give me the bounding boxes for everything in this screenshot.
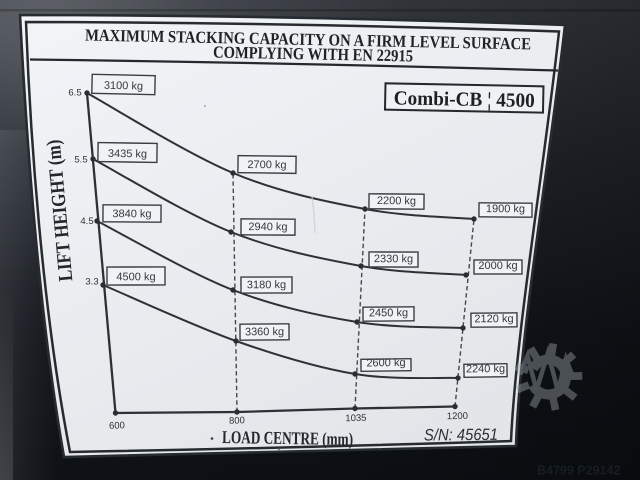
svg-text:3360 kg: 3360 kg xyxy=(245,326,284,338)
svg-text:4500 kg: 4500 kg xyxy=(116,271,155,283)
svg-text:2700 kg: 2700 kg xyxy=(247,159,286,171)
svg-text:2240 kg: 2240 kg xyxy=(466,363,505,376)
svg-text:2120 kg: 2120 kg xyxy=(474,313,513,325)
svg-text:S/N: 45651: S/N: 45651 xyxy=(424,426,498,445)
svg-text:6.5: 6.5 xyxy=(68,88,81,99)
svg-text:2450 kg: 2450 kg xyxy=(369,307,408,319)
svg-text:3435 kg: 3435 kg xyxy=(108,148,147,161)
svg-text:2330 kg: 2330 kg xyxy=(374,253,413,265)
svg-text:2000 kg: 2000 kg xyxy=(478,260,517,272)
svg-text:Combi-CB ¦ 4500: Combi-CB ¦ 4500 xyxy=(394,87,535,112)
svg-text:5.5: 5.5 xyxy=(74,155,87,166)
svg-text:3840 kg: 3840 kg xyxy=(112,208,151,220)
svg-text:3180 kg: 3180 kg xyxy=(247,279,286,291)
svg-text:1200: 1200 xyxy=(447,411,468,423)
svg-text:2940 kg: 2940 kg xyxy=(248,221,287,233)
svg-text:2200 kg: 2200 kg xyxy=(377,195,416,207)
svg-text:LOAD CENTRE (mm): LOAD CENTRE (mm) xyxy=(222,427,353,450)
svg-text:1035: 1035 xyxy=(345,413,366,425)
svg-text:2600 kg: 2600 kg xyxy=(366,357,405,369)
svg-text:4.5: 4.5 xyxy=(80,216,93,227)
svg-text:3100 kg: 3100 kg xyxy=(104,80,143,93)
svg-text:800: 800 xyxy=(229,415,245,426)
svg-text:3.3: 3.3 xyxy=(85,277,98,288)
svg-text:1900 kg: 1900 kg xyxy=(486,203,525,215)
svg-text:600: 600 xyxy=(109,420,125,431)
svg-text:B4799 P29142: B4799 P29142 xyxy=(537,464,620,478)
